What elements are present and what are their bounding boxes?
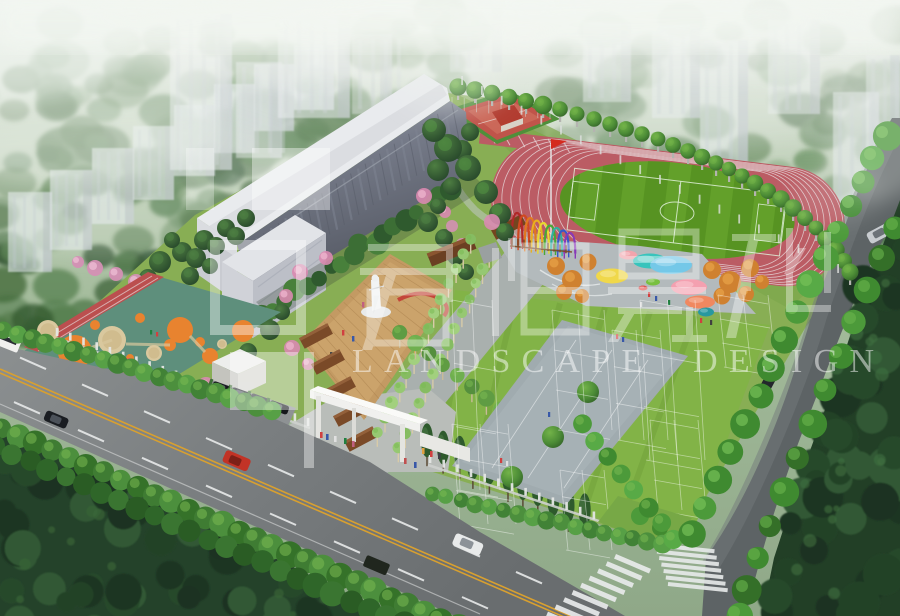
svg-text:LANDSCAPE DESIGN: LANDSCAPE DESIGN [352, 343, 880, 380]
